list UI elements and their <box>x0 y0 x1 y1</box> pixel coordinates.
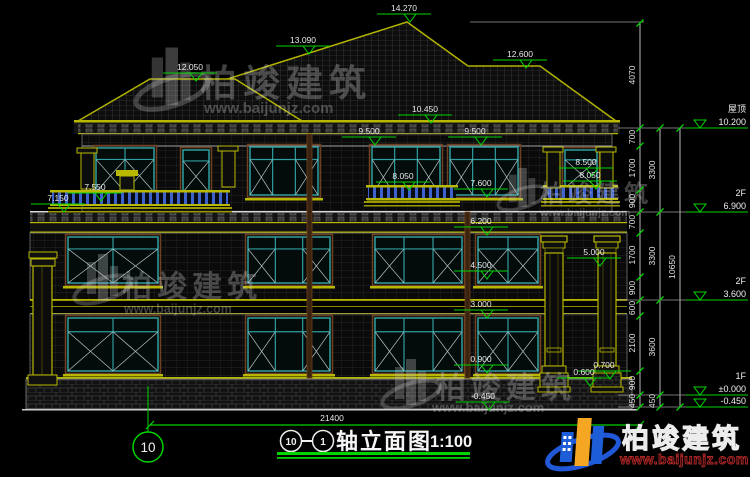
dim-value: 600 <box>627 301 637 315</box>
flag-label: 1F <box>735 371 746 381</box>
level-value: -0.450 <box>471 391 495 401</box>
downspout-left <box>307 134 312 378</box>
watermark-url: www.baijunjz.com <box>203 100 333 117</box>
level-value: 5.000 <box>583 247 605 257</box>
window <box>370 316 467 377</box>
title-underline <box>277 452 470 455</box>
level-flag: 2F6.900 <box>686 188 748 212</box>
flag-value: 6.900 <box>723 201 746 211</box>
window <box>370 235 467 289</box>
dim-value: 900 <box>627 194 637 208</box>
level-value: 7.600 <box>470 178 492 188</box>
watermark-url: www.baijunjz.com <box>539 207 631 219</box>
window <box>63 316 163 377</box>
level-value: 12.050 <box>177 62 203 72</box>
level-marker: 12.600 <box>493 49 547 68</box>
level-flag: 2F3.600 <box>686 276 748 300</box>
flag-label: 屋顶 <box>728 104 746 114</box>
downspout-right <box>465 212 470 378</box>
flag-value: 3.600 <box>723 289 746 299</box>
dim-value: 2100 <box>627 333 637 352</box>
dim-value: 1700 <box>627 245 637 264</box>
level-flag: 1F±0.000 <box>686 371 748 395</box>
level-value: 0.700 <box>593 360 615 370</box>
level-value: 8.050 <box>579 170 601 180</box>
level-value: 7.150 <box>47 193 69 203</box>
level-value: 0.900 <box>470 354 492 364</box>
brand-url: www.baijunjz.com <box>619 451 749 467</box>
level-marker: 14.270 <box>377 3 431 22</box>
level-value: 7.550 <box>84 182 106 192</box>
dim-value: 3600 <box>647 337 657 356</box>
level-value: 3.000 <box>470 299 492 309</box>
watermark-name: 柏竣建筑 <box>122 270 262 304</box>
level-value: 12.600 <box>507 49 533 59</box>
title-axis-end: 1 <box>320 437 326 448</box>
level-value: 0.600 <box>573 367 595 377</box>
level-value: 9.500 <box>358 126 380 136</box>
level-value: 6.200 <box>470 216 492 226</box>
flag-label: 2F <box>735 188 746 198</box>
dim-value: 900 <box>627 281 637 295</box>
dim-value: 3300 <box>647 160 657 179</box>
level-value: 10.450 <box>412 104 438 114</box>
title-scale: 1:100 <box>430 433 472 451</box>
eave-trim <box>74 120 620 123</box>
axis-bubble-number: 10 <box>140 440 155 455</box>
watermark-url: www.baijunjz.com <box>123 302 232 316</box>
level-flag: 屋顶10.200 <box>686 104 748 128</box>
dim-value: 4070 <box>627 65 637 84</box>
title-underline2 <box>277 457 470 459</box>
level-value: 13.090 <box>290 35 316 45</box>
level-flag: -0.450 <box>686 396 748 407</box>
flag-value: 10.200 <box>718 117 746 127</box>
logo-block-left <box>560 432 574 462</box>
dim-value: 700 <box>627 130 637 144</box>
title-axis-start: 10 <box>285 437 297 448</box>
cad-elevation-screenshot: 柏竣建筑 www.baijunjz.com 柏竣建筑 www.baijunjz.… <box>0 0 750 477</box>
course-line-9500 <box>82 146 612 147</box>
elevation-drawing: 柏竣建筑 www.baijunjz.com 柏竣建筑 www.baijunjz.… <box>0 0 750 477</box>
level-value: 8.500 <box>575 157 597 167</box>
brand-name: 柏竣建筑 <box>622 423 742 454</box>
dim-value: 3300 <box>647 246 657 265</box>
band-3600-top <box>30 299 627 301</box>
window <box>243 316 335 377</box>
flag-label: 2F <box>735 276 746 286</box>
band-trim <box>30 222 627 223</box>
level-value: 9.500 <box>464 126 486 136</box>
flag-value: ±0.000 <box>719 384 746 394</box>
width-dim-text: 21400 <box>320 413 344 423</box>
window <box>473 316 543 377</box>
brand-logo: 柏竣建筑 www.baijunjz.com <box>544 418 749 476</box>
level-value: 8.050 <box>392 171 414 181</box>
flag-value: -0.450 <box>720 396 746 406</box>
level-value: 4.500 <box>470 260 492 270</box>
drawing-title: 10 1 轴立面图 1:100 <box>277 429 472 459</box>
watermark-name: 柏竣建筑 <box>200 62 372 104</box>
dim-value: 450 <box>647 394 657 408</box>
band-3600-mid <box>30 306 627 307</box>
level-value: 14.270 <box>391 3 417 13</box>
dim-value: 10650 <box>667 255 677 279</box>
ground-line <box>22 409 638 411</box>
eave-dentils <box>78 124 618 133</box>
band-dentils <box>30 213 627 222</box>
dim-value: 700 <box>627 215 637 229</box>
title-name: 轴立面图 <box>336 429 432 454</box>
dim-value: 1700 <box>627 158 637 177</box>
dim-value: 900 <box>627 376 637 390</box>
dim-value: 450 <box>627 394 637 408</box>
